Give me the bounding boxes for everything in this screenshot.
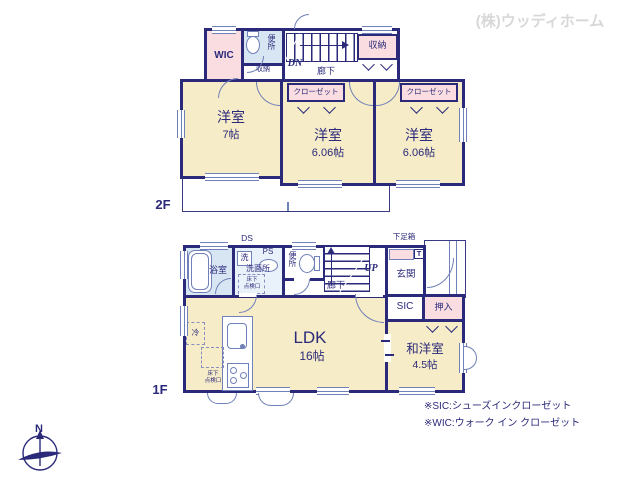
- tall-cabinet-label: T: [414, 250, 424, 258]
- door-arc-stairwell: [294, 14, 309, 29]
- window: [317, 387, 349, 395]
- porch-step-line: [456, 241, 457, 297]
- toilet-fixture-1f: [299, 254, 315, 273]
- stairs-arrow-2f: [300, 45, 344, 46]
- washer-label: 洗: [237, 254, 252, 263]
- room-east-size: 6.06帖: [384, 147, 454, 159]
- window: [459, 108, 467, 142]
- ldk-size-label: 16帖: [277, 350, 347, 363]
- floor-hatch-ldk: [201, 347, 224, 368]
- company-name: (株)ウッディホーム: [450, 14, 630, 31]
- toilet-tank-2f: [247, 31, 259, 37]
- kitchen-faucet: [240, 344, 245, 349]
- hallway-label-2f: 廊下: [308, 66, 344, 76]
- oshiire-label: 押入: [422, 302, 465, 312]
- window: [205, 173, 259, 181]
- window-bay: [464, 346, 477, 370]
- shoe-box: [389, 249, 414, 260]
- note-sic: ※SIC:シューズインクローゼット: [424, 401, 634, 412]
- fridge-label: 冷: [186, 329, 205, 337]
- ldk-name-label: LDK: [275, 328, 345, 347]
- washitsu-name-label: 和洋室: [390, 342, 460, 356]
- hatch-small-label-1: 床下: [240, 277, 264, 283]
- window: [298, 180, 342, 188]
- closet-label-east: クローゼット: [400, 88, 458, 96]
- stairs-arrowhead-2f: [342, 41, 349, 49]
- toilet-label-1f: 便所: [287, 251, 296, 267]
- window: [362, 26, 392, 34]
- terrace-step: [207, 393, 237, 404]
- hallway-label-1f: 廊下: [318, 280, 354, 290]
- sic-label: SIC: [385, 301, 425, 312]
- window: [292, 242, 316, 250]
- washitsu-size-label: 4.5帖: [390, 360, 460, 372]
- storage-label-2f: 収納: [357, 40, 398, 50]
- window: [212, 26, 236, 34]
- window: [399, 387, 435, 395]
- toilet-label-2f: 便所: [266, 34, 275, 50]
- stove-burner: [230, 377, 237, 384]
- stove-burner: [240, 372, 247, 379]
- stairs-arrowhead-1f: [327, 247, 335, 254]
- entrance-label: 玄関: [390, 270, 422, 281]
- compass-icon: N: [10, 420, 72, 478]
- washroom-label: 洗面所: [235, 265, 281, 274]
- floor-label-1f: 1F: [147, 383, 173, 398]
- floorplan-canvas: (株)ウッディホーム 2F WIC 収納 便所 DN 廊下 収納 クローゼッ: [0, 0, 640, 480]
- ps-label: PS: [257, 248, 279, 257]
- shoe-box-label: 下足箱: [386, 233, 422, 241]
- hatch-small-label-2: 点検口: [240, 284, 264, 290]
- bath-label: 浴室: [198, 265, 238, 275]
- floor-label-2f: 2F: [150, 198, 176, 213]
- room-center-name: 洋室: [293, 128, 363, 144]
- note-wic: ※WIC:ウォーク イン クローゼット: [424, 418, 634, 429]
- room-east-name: 洋室: [384, 128, 454, 144]
- wic-label: WIC: [204, 50, 244, 61]
- stove-burner: [230, 367, 237, 374]
- closet-label-center: クローゼット: [287, 88, 345, 96]
- room-center-size: 6.06帖: [293, 147, 363, 159]
- window: [396, 180, 440, 188]
- ds-label: DS: [236, 234, 258, 244]
- up-label: UP: [358, 263, 384, 274]
- sliding-door-leaf: [381, 340, 390, 342]
- window: [200, 242, 228, 250]
- toilet-fixture-2f: [246, 36, 260, 54]
- balcony-divider: [287, 202, 289, 211]
- dn-label: DN: [283, 58, 307, 69]
- toilet-tank-1f: [314, 256, 320, 271]
- window: [177, 110, 185, 138]
- room-west-name: 洋室: [196, 110, 266, 126]
- terrace-step: [258, 393, 294, 406]
- window: [180, 251, 188, 279]
- hatch-label-2: 点検口: [200, 378, 226, 384]
- compass-n-label: N: [35, 423, 43, 435]
- room-west-size: 7帖: [196, 129, 266, 141]
- storage-niche-label: 収納: [241, 66, 285, 74]
- hatch-label-1: 床下: [200, 371, 226, 377]
